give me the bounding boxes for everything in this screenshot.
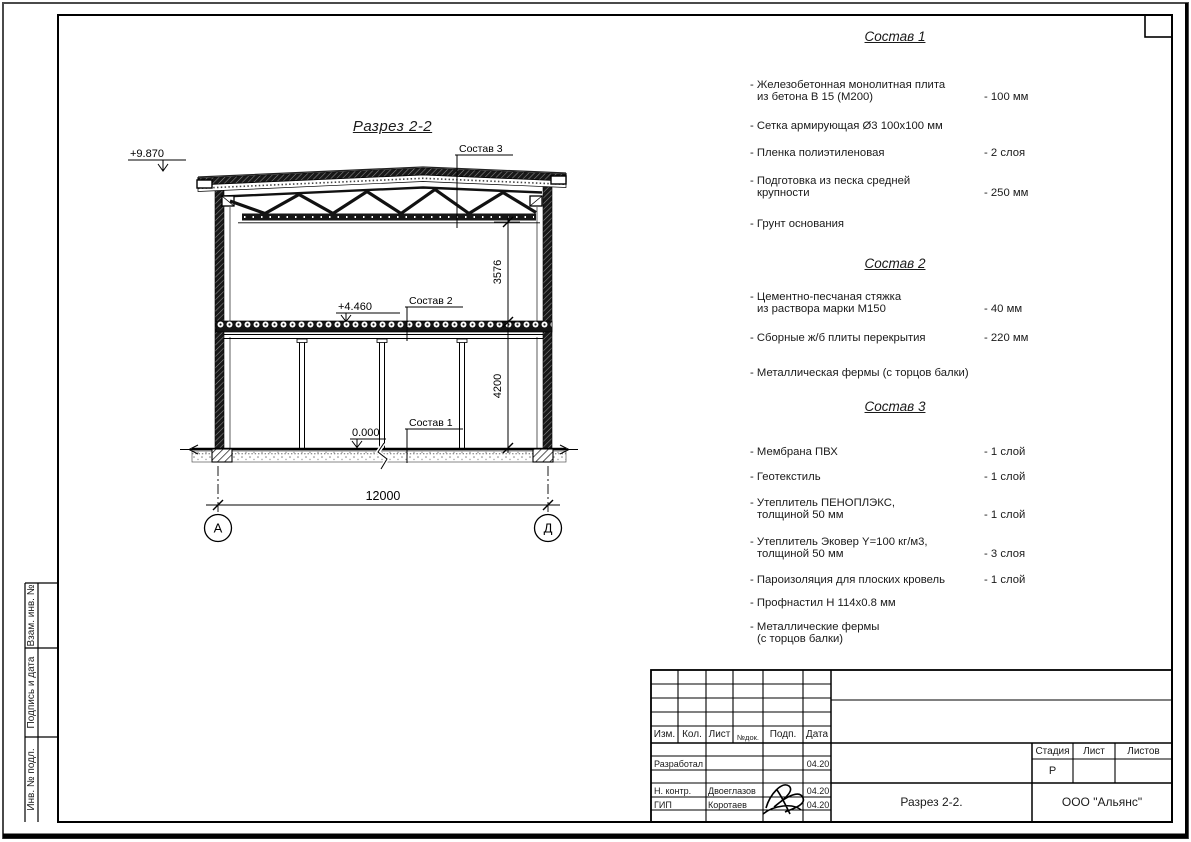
section-drawing: +9.870 +4.460 0.000 Состав 3 Состав 2 Со… — [128, 143, 578, 542]
wall-left — [215, 183, 224, 449]
name-gip: Коротаев — [708, 800, 747, 811]
col-list: Лист — [706, 729, 733, 741]
col-data: Дата — [803, 729, 831, 741]
footing-right — [533, 449, 553, 462]
elevation-floor2-label: +4.460 — [338, 301, 372, 313]
list-item-line2: толщиной 50 мм — [757, 509, 844, 521]
sheets-label: Листов — [1115, 746, 1172, 758]
list-item: - Геотекстиль — [750, 471, 821, 483]
roof-assembly — [197, 167, 566, 192]
role-ncontr: Н. контр. — [654, 786, 691, 797]
list-item: - Пленка полиэтиленовая — [750, 147, 884, 159]
role-gip: ГИП — [654, 800, 672, 811]
hollow-core-slab — [216, 321, 552, 332]
drawing-sheet: { "colors": { "ink": "#1a1a1a", "paper":… — [0, 0, 1191, 842]
side-strip-inv: Инв. № подл. — [25, 737, 38, 822]
wall-right — [543, 183, 552, 449]
sheet-linework: +9.870 +4.460 0.000 Состав 3 Состав 2 Со… — [0, 0, 1191, 842]
list-item: - Профнастил Н 114х0.8 мм — [750, 597, 896, 609]
list-item-value: - 2 слоя — [984, 147, 1025, 159]
list-item: - Мембрана ПВХ — [750, 446, 838, 458]
list-item: - Железобетонная монолитная плита — [750, 79, 945, 91]
column — [457, 339, 467, 449]
callout-1-label: Состав 1 — [409, 417, 453, 429]
role-developed: Разработал — [654, 759, 703, 770]
list-item: - Грунт основания — [750, 218, 844, 230]
stage-value: Р — [1032, 765, 1073, 777]
ground-slab — [180, 443, 578, 469]
list-item-value: - 1 слой — [984, 509, 1025, 521]
company-name: ООО "Альянс" — [1032, 796, 1172, 808]
section-title: Разрез 2-2 — [320, 121, 465, 133]
roof-truss — [222, 188, 542, 223]
list-item-line2: толщиной 50 мм — [757, 548, 844, 560]
roof-edge-cap-left — [197, 180, 212, 188]
list-item-value: - 40 мм — [984, 303, 1022, 315]
col-izm: Изм. — [651, 729, 678, 741]
dim-span-label: 12000 — [366, 489, 401, 503]
list-item: - Пароизоляция для плоских кровель — [750, 574, 945, 586]
stage-label: Стадия — [1032, 746, 1073, 758]
elevation-zero-label: 0.000 — [352, 427, 380, 439]
inner-frame — [58, 15, 1172, 822]
date-ncontr: 04.20 — [805, 786, 831, 797]
list-item: - Сборные ж/б плиты перекрытия — [750, 332, 926, 344]
composition-1-title: Состав 1 — [750, 31, 1040, 43]
composition-3-title: Состав 3 — [750, 401, 1040, 413]
dim-upper-label: 3576 — [492, 260, 504, 284]
list-item: - Цементно-песчаная стяжка — [750, 291, 901, 303]
doc-title: Разрез 2-2. — [831, 796, 1032, 808]
truss-top-chord — [224, 188, 542, 197]
callout-2-label: Состав 2 — [409, 295, 453, 307]
col-podp: Подп. — [763, 729, 803, 741]
list-item-line2: крупности — [757, 187, 810, 199]
sheet-label: Лист — [1073, 746, 1115, 758]
col-ndok: №док. — [733, 732, 763, 744]
side-strip-podpis: Подпись и дата — [25, 648, 38, 737]
axis-right-letter: Д — [544, 521, 553, 536]
list-item-value: - 3 слоя — [984, 548, 1025, 560]
col-kol: Кол. — [678, 729, 706, 741]
list-item-value: - 220 мм — [984, 332, 1028, 344]
side-strip-vzam: Взам. инв. № — [25, 583, 38, 648]
footing-left — [212, 449, 232, 462]
list-item-value: - 1 слой — [984, 446, 1025, 458]
composition-2-title: Состав 2 — [750, 258, 1040, 270]
dim-lower-label: 4200 — [492, 374, 504, 398]
list-item-line2: из раствора марки М150 — [757, 303, 886, 315]
date-developed: 04.20 — [805, 759, 831, 770]
name-ncontr: Двоеглазов — [708, 786, 756, 797]
list-item-value: - 250 мм — [984, 187, 1028, 199]
list-item: - Металлическая фермы (с торцов балки) — [750, 367, 969, 379]
list-item-value: - 100 мм — [984, 91, 1028, 103]
elevation-roof-label: +9.870 — [130, 148, 164, 160]
corner-stamp-box — [1145, 15, 1172, 37]
axis-left-letter: А — [214, 521, 223, 536]
list-item: - Сетка армирующая Ø3 100х100 мм — [750, 120, 943, 132]
list-item: - Подготовка из песка средней — [750, 175, 910, 187]
column — [297, 339, 307, 449]
callout-3-label: Состав 3 — [459, 143, 503, 155]
sheet-border — [3, 3, 1188, 838]
list-item: - Утеплитель ПЕНОПЛЭКС, — [750, 497, 895, 509]
date-gip: 04.20 — [805, 800, 831, 811]
columns — [297, 339, 467, 449]
list-item-line2: из бетона В 15 (М200) — [757, 91, 873, 103]
roof-edge-cap-right — [551, 176, 566, 184]
list-item: - Утеплитель Эковер Y=100 кг/м3, — [750, 536, 928, 548]
list-item-line2: (с торцов балки) — [757, 633, 843, 645]
list-item-value: - 1 слой — [984, 471, 1025, 483]
list-item: - Металлические фермы — [750, 621, 879, 633]
list-item-value: - 1 слой — [984, 574, 1025, 586]
floor-slab — [216, 321, 552, 339]
